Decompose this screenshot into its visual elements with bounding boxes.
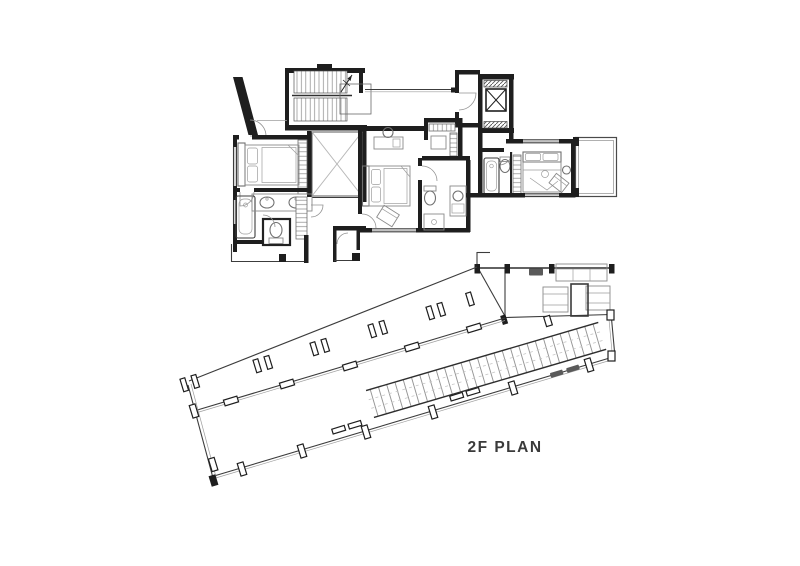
- bathtub-3: [484, 158, 499, 194]
- side-table-3: [563, 166, 571, 174]
- master-bathroom: [233, 194, 312, 245]
- bed-2: [363, 166, 411, 206]
- lamp-3: [542, 171, 549, 178]
- elevator: [478, 74, 514, 133]
- vanity-2: [450, 186, 466, 216]
- elevator-door-top: [484, 81, 507, 88]
- coffee-table: [571, 284, 588, 316]
- master-bed: [238, 143, 299, 186]
- lobby-door-arc: [459, 93, 476, 110]
- shower-2: [424, 214, 444, 230]
- main-floor-plan: [231, 64, 617, 263]
- stair-flight-up: [294, 71, 347, 93]
- floor-plan-sheet: 2F PLAN: [0, 0, 800, 566]
- ottoman-chair: [377, 205, 400, 226]
- staircase: [285, 64, 371, 130]
- outdoor-sofa: [556, 264, 607, 281]
- angled-wall: [233, 77, 258, 135]
- plan-title: 2F PLAN: [467, 439, 542, 456]
- annex-room: [333, 230, 360, 262]
- wall: [478, 131, 483, 197]
- elevator-door-bottom: [484, 122, 507, 129]
- shelf-strip: [296, 197, 307, 239]
- roof-deck: [180, 252, 615, 487]
- stair-flight-down: [294, 98, 347, 121]
- wc-room: [263, 215, 290, 245]
- corridor-door-arc: [311, 205, 323, 217]
- bedroom-3: [478, 139, 576, 198]
- closet-strip-3: [513, 155, 521, 195]
- bath2-door-arc: [422, 166, 437, 181]
- deck-fence-line: [189, 267, 477, 381]
- lounge-chair-left: [543, 287, 568, 312]
- bathroom-3: [482, 148, 521, 197]
- deck-terrace: [475, 252, 615, 327]
- chair-3: [549, 173, 569, 192]
- balcony: [573, 137, 617, 197]
- corridor: [311, 205, 366, 231]
- deck-edges: [188, 267, 615, 479]
- annex-door-arc: [337, 233, 348, 244]
- bathroom-2: [418, 156, 471, 232]
- bedroom2-door-arc: [362, 214, 376, 228]
- toilet-2: [424, 186, 436, 205]
- planter: [529, 269, 543, 276]
- floor-plan-drawing: 2F PLAN: [0, 0, 800, 566]
- lounge-chair-right: [586, 286, 610, 310]
- roof-edge-line: [365, 88, 457, 93]
